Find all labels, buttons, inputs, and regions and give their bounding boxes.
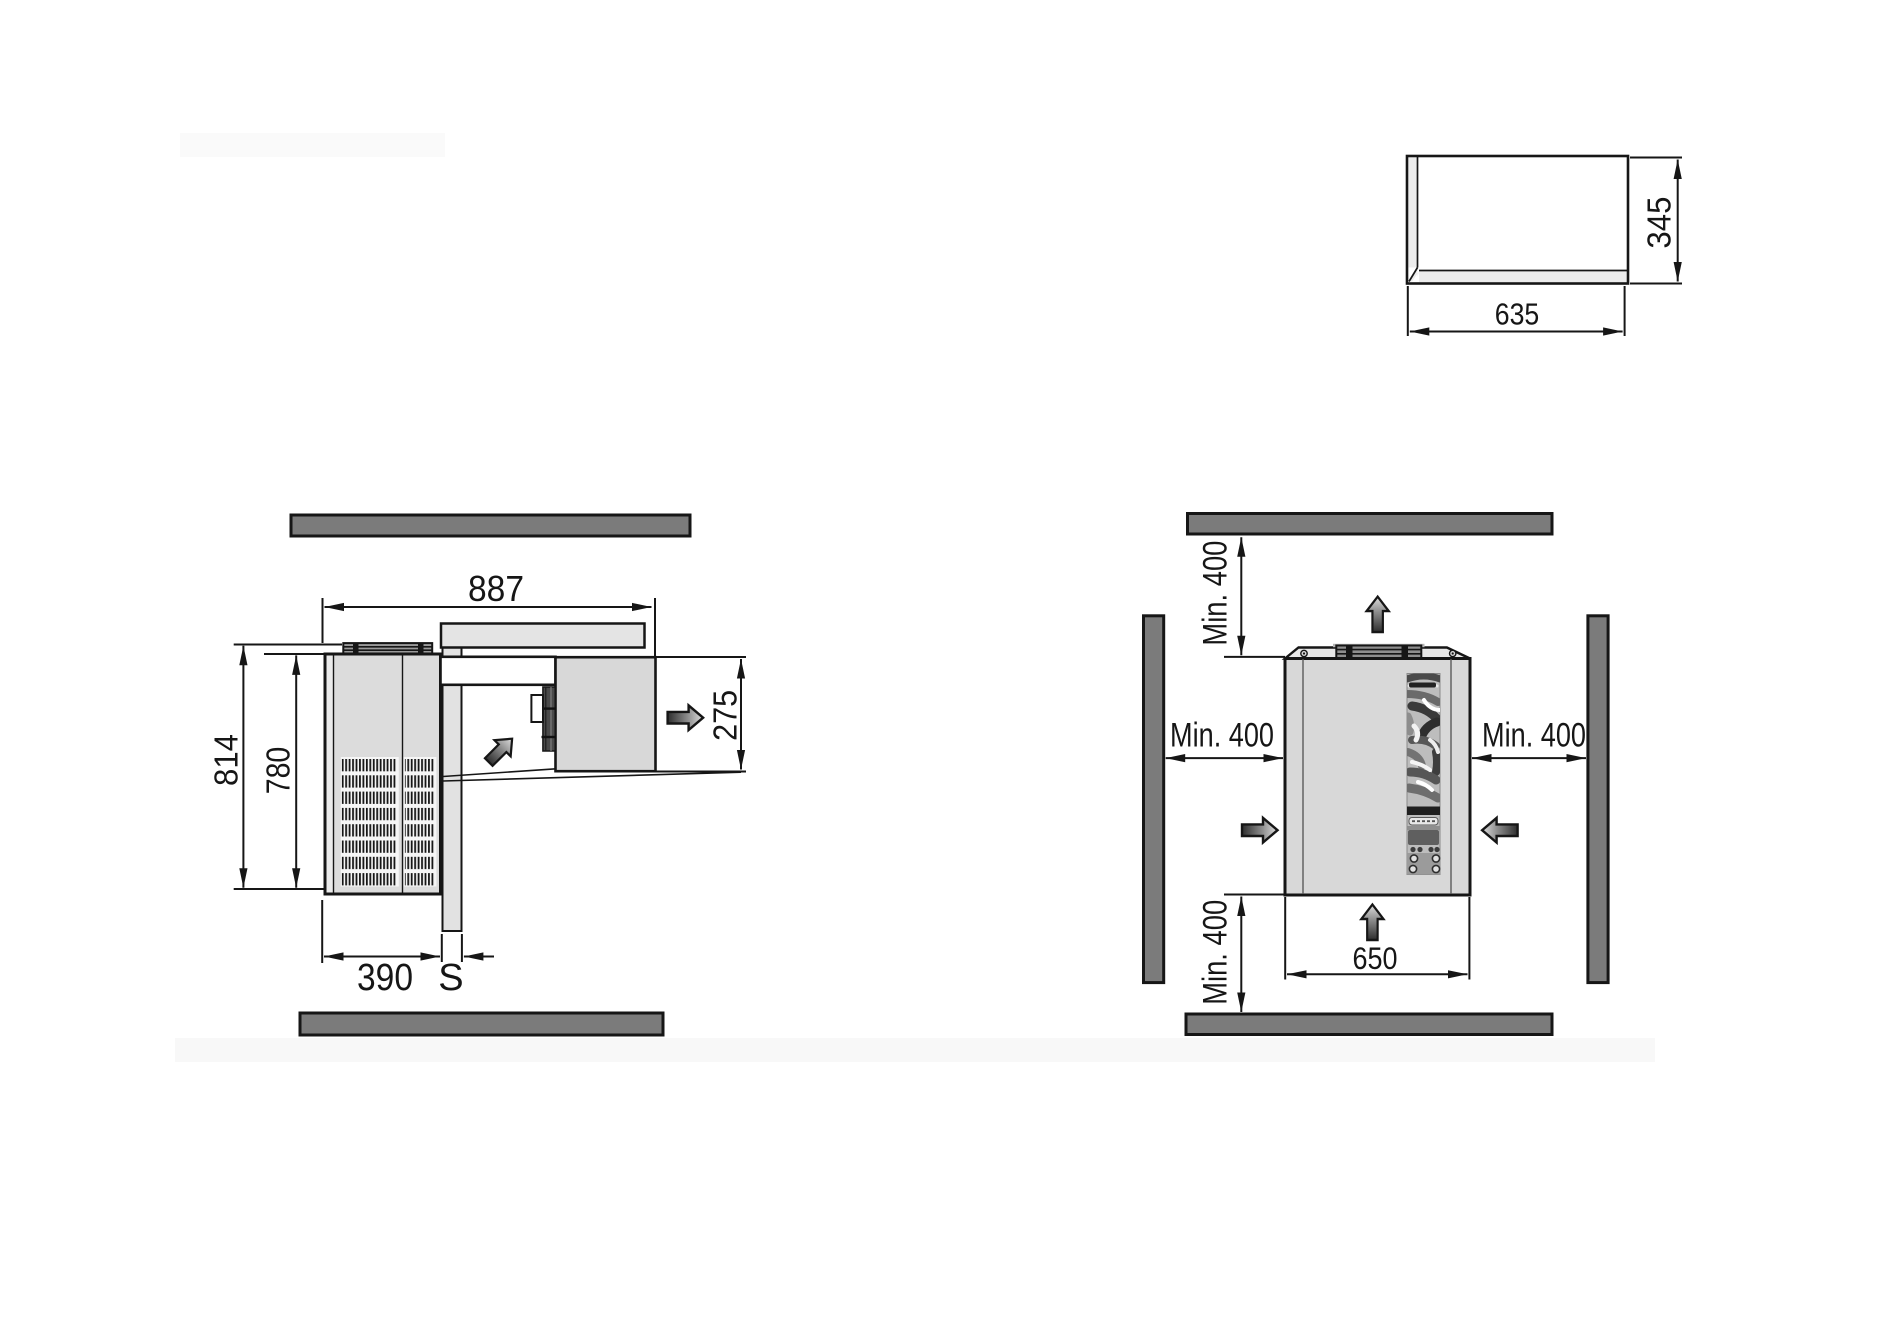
- svg-text:390: 390: [357, 957, 413, 999]
- svg-text:650: 650: [1353, 940, 1398, 976]
- svg-text:887: 887: [468, 568, 524, 609]
- svg-text:Min. 400: Min. 400: [1482, 717, 1586, 755]
- svg-text:635: 635: [1495, 296, 1540, 331]
- svg-text:814: 814: [207, 734, 244, 786]
- svg-text:Min. 400: Min. 400: [1170, 717, 1274, 755]
- svg-text:345: 345: [1641, 197, 1678, 249]
- svg-text:Min. 400: Min. 400: [1196, 900, 1234, 1005]
- svg-text:780: 780: [259, 747, 296, 795]
- svg-text:275: 275: [706, 690, 743, 741]
- svg-text:S: S: [438, 957, 463, 999]
- svg-text:Min. 400: Min. 400: [1196, 541, 1234, 646]
